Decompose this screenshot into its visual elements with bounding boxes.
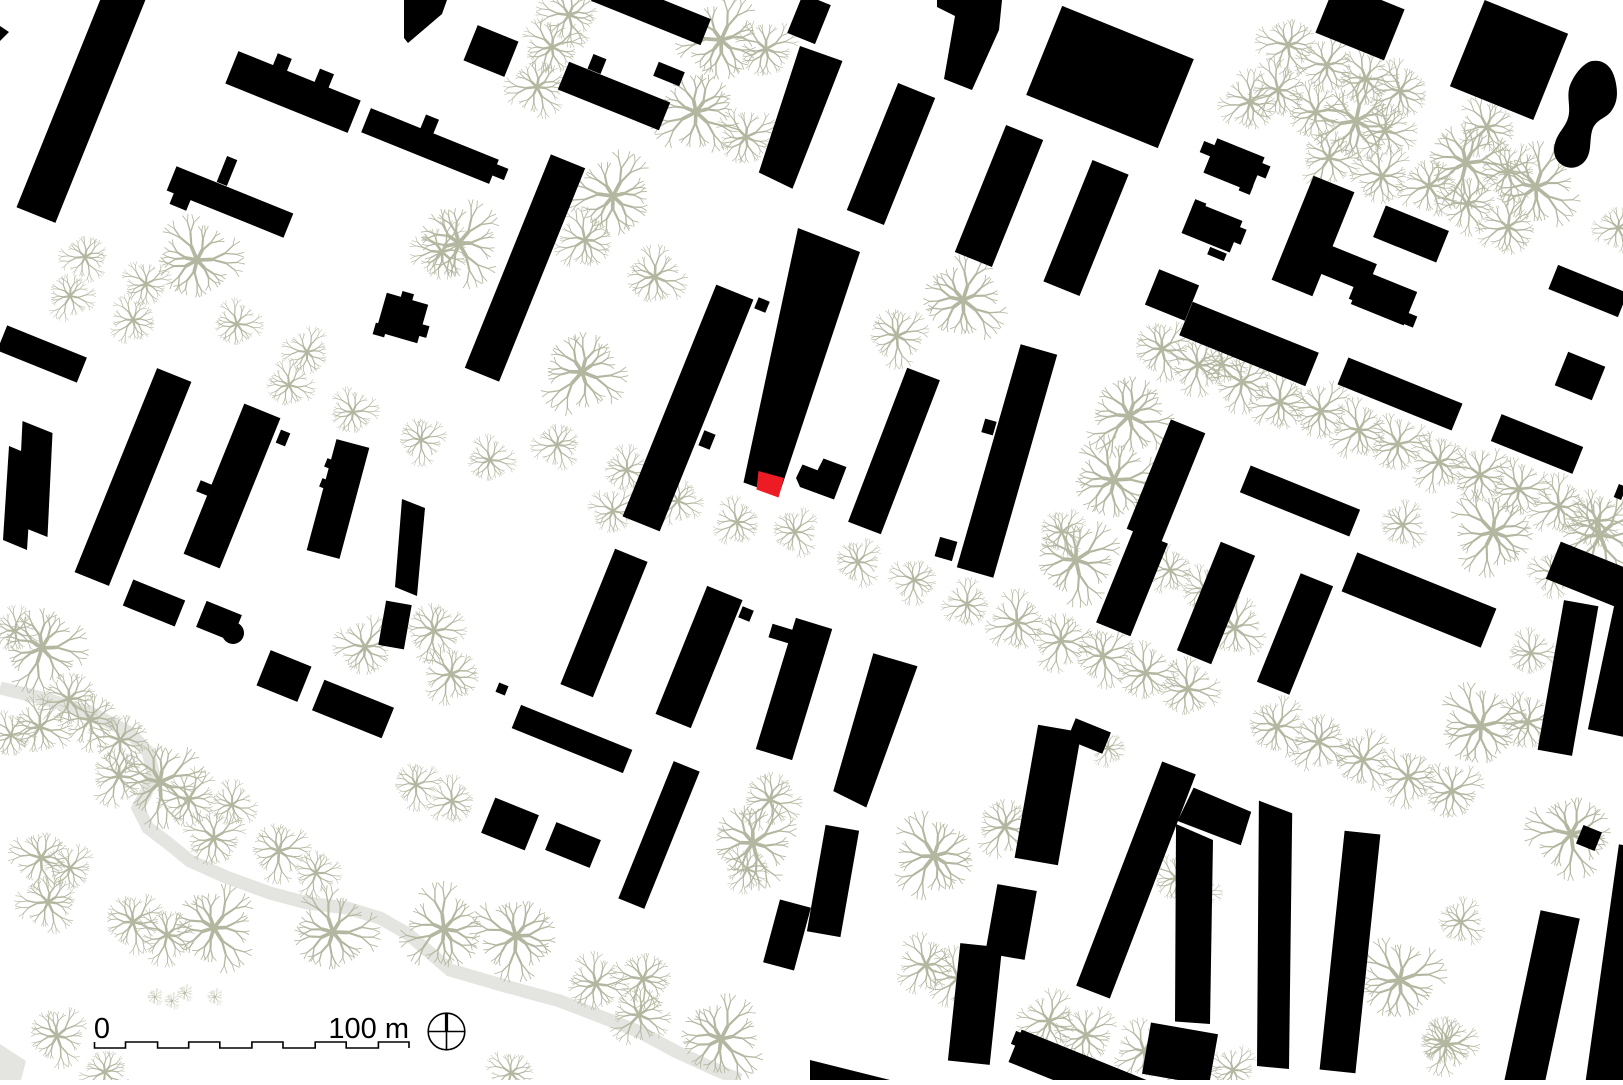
svg-text:100 m: 100 m [328, 1013, 409, 1045]
svg-text:0: 0 [94, 1013, 110, 1045]
